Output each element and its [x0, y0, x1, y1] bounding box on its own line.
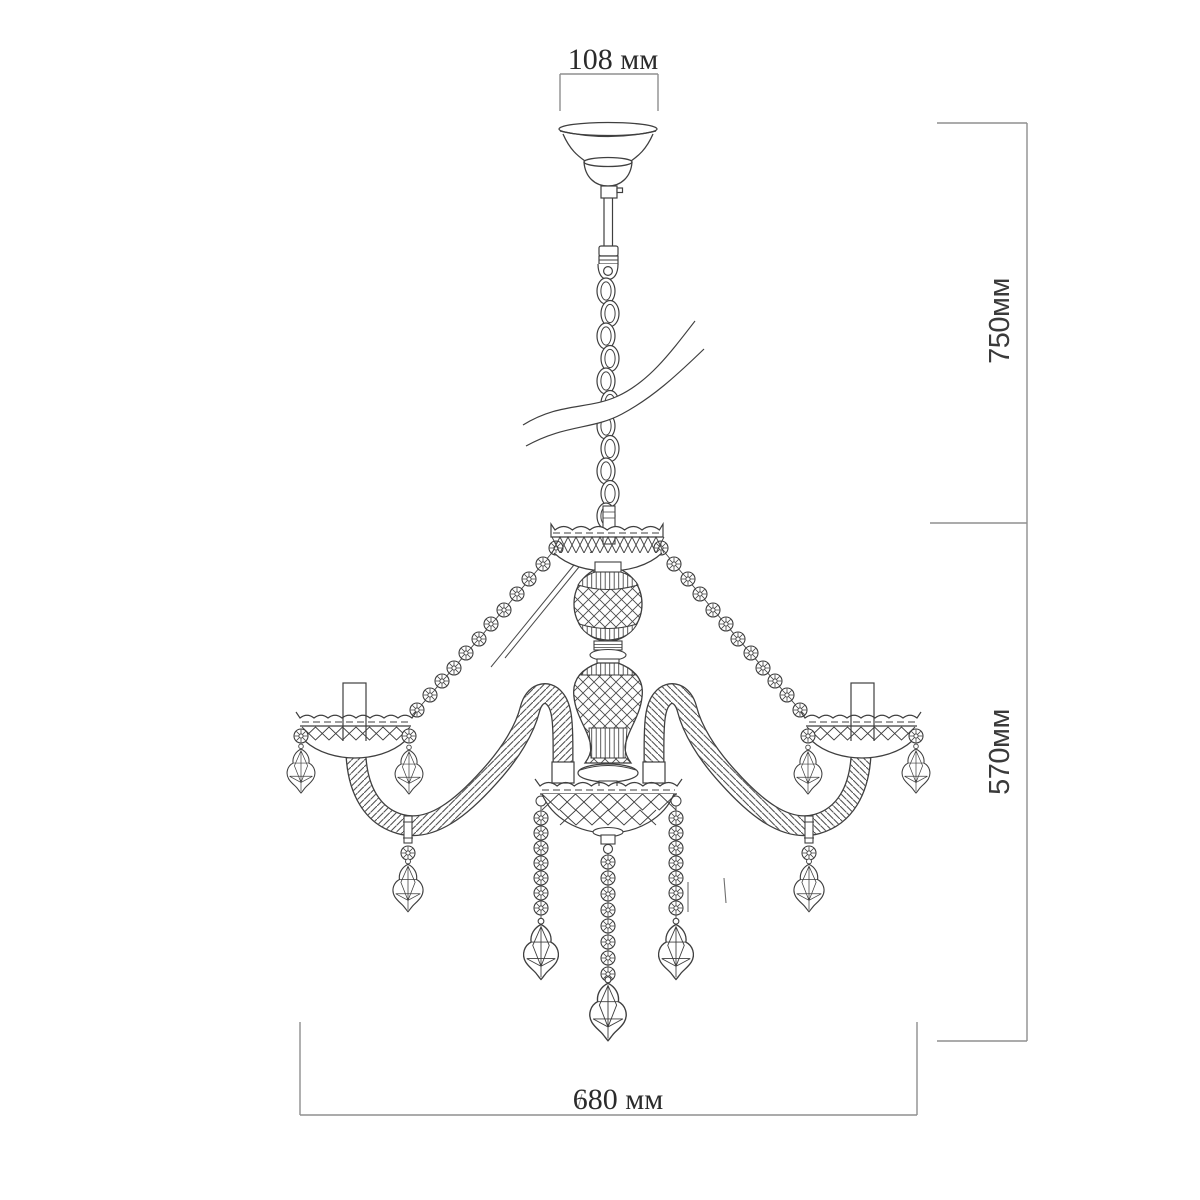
dimension-line-right: [930, 123, 1027, 1041]
bottom-bobeche: [535, 779, 682, 854]
ceiling-canopy: [559, 123, 657, 187]
dimension-label-right-lower: 570мм: [984, 709, 1016, 795]
candle-sleeve-inner: [552, 762, 574, 783]
crystal-ball: [574, 562, 642, 641]
scroll-arm: [356, 694, 563, 826]
dimension-label-bottom: 680 мм: [573, 1083, 663, 1116]
dimension-label-right-upper: 750мм: [984, 278, 1016, 364]
dimension-bracket-top: [560, 74, 658, 111]
right-side-assembly: [643, 541, 930, 980]
baluster-vase: [574, 663, 643, 763]
dimension-label-top: 108 мм: [568, 43, 658, 76]
dish-bead-string: [524, 796, 559, 980]
drawing-canvas: 108 мм 750мм 570мм 680 мм: [0, 0, 1200, 1200]
chandelier-dimension-drawing: 108 мм 750мм 570мм 680 мм: [0, 0, 1200, 1200]
stray-marks: [688, 878, 726, 912]
left-side-assembly: [287, 541, 574, 980]
center-bead-string: [590, 853, 626, 1041]
rod-connector: [598, 186, 623, 280]
neck-rings: [590, 641, 626, 665]
